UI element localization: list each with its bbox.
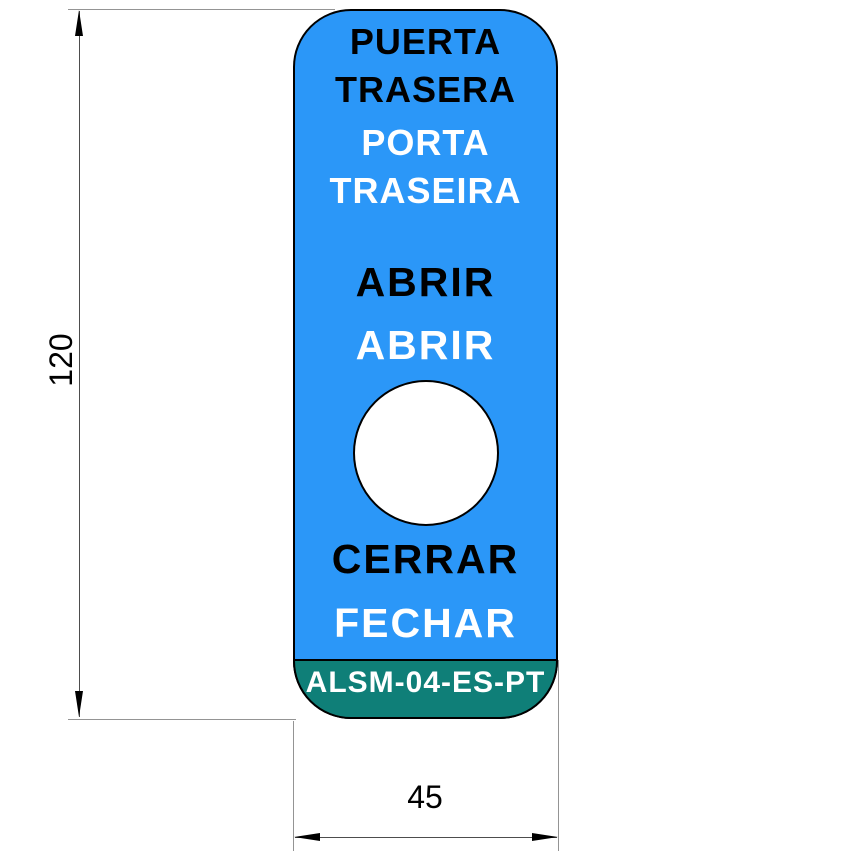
height-extension-line-bottom [68,719,296,720]
plate-footer: ALSM-04-ES-PT [293,659,558,719]
plate-text-door-es-line2: TRASERA [295,72,556,108]
dimension-arrow-left-icon [294,833,320,841]
dimension-arrow-up-icon [75,10,83,36]
mounting-hole [353,380,499,526]
plate-text-open-es: ABRIR [295,262,556,303]
plate-text-door-es-line1: PUERTA [295,24,556,60]
part-number-label: ALSM-04-ES-PT [306,666,546,700]
plate-text-open-pt: ABRIR [295,325,556,366]
dimension-arrow-right-icon [532,833,558,841]
plate-text-door-pt-line2: TRASEIRA [295,173,556,209]
plate-text-door-pt-line1: PORTA [295,125,556,161]
width-extension-line-right [558,660,559,851]
technical-drawing-canvas: 120 45 PUERTA TRASERA PORTA TRASEIRA ABR… [0,0,850,851]
legend-plate: PUERTA TRASERA PORTA TRASEIRA ABRIR ABRI… [293,9,558,719]
plate-text-close-es: CERRAR [295,539,556,580]
width-dimension-line [295,837,557,838]
width-dimension-value: 45 [345,778,505,816]
height-dimension-value: 120 [42,300,80,420]
width-extension-line-left [293,721,294,851]
dimension-arrow-down-icon [75,691,83,717]
height-extension-line-top [68,9,335,10]
plate-text-close-pt: FECHAR [295,603,556,644]
